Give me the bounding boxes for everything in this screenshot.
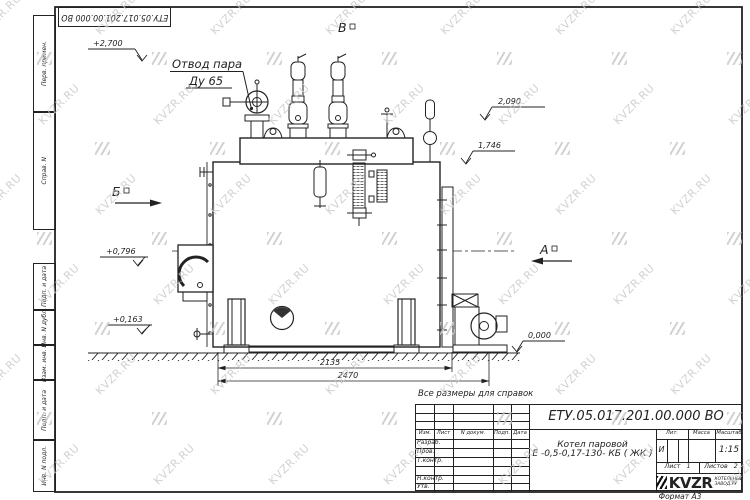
burner-unit	[178, 245, 213, 301]
svg-text:А: А	[539, 242, 549, 257]
col-podp: Подп.	[493, 429, 511, 439]
steam-outlet-valve	[223, 80, 269, 138]
scale-header: Масштаб	[715, 429, 743, 439]
row-razrab: Разраб.	[417, 439, 453, 448]
side-field-perv-primen: Перв. примен.	[33, 15, 56, 112]
sheet-cell: Лист 1	[656, 462, 699, 473]
lit-value: И	[656, 439, 667, 462]
svg-text:+0,796: +0,796	[106, 247, 136, 256]
svg-text:+0,163: +0,163	[113, 315, 143, 324]
lit-header: Лит.	[656, 429, 688, 439]
logo-subtitle: КОТЕЛЬНЫЙ ЗАВОД.РУ	[714, 478, 743, 488]
view-marker-top: В	[338, 20, 355, 35]
mass-value	[688, 439, 715, 462]
side-field-inv-podl: Инв. N подл.	[33, 440, 56, 492]
side-field-inv-dubl: Инв. N дубл.	[33, 310, 56, 345]
safety-valve-2	[328, 54, 348, 138]
dim-2135: 2135	[320, 358, 340, 367]
format-label: Формат А3	[630, 492, 730, 500]
top-inverted-stamp: ЕТУ.05.017.201.00.000 ВО	[58, 7, 171, 27]
col-data: Дата	[511, 429, 529, 439]
row-tkontr: Т.контр.	[417, 457, 453, 466]
callout-line2: Ду 65	[188, 74, 223, 88]
view-marker-right: А	[531, 242, 572, 265]
row-utv: Утв.	[417, 483, 453, 492]
spring-icon	[656, 476, 667, 489]
side-field-podp-data-1: Подп. и дата	[33, 263, 56, 310]
pressure-gauge	[424, 100, 437, 162]
dim-2470: 2470	[338, 371, 358, 380]
svg-text:+2,700: +2,700	[93, 39, 123, 48]
kvzr-logo: KVZR КОТЕЛЬНЫЙ ЗАВОД.РУ	[656, 473, 743, 492]
reference-note: Все размеры для справок	[418, 389, 534, 399]
side-field-vzam-inv: Взам. инв. N	[33, 345, 56, 380]
vent-pipe	[381, 108, 393, 138]
svg-text:0,000: 0,000	[528, 331, 551, 340]
col-izm: Изм.	[416, 429, 434, 439]
logo-text: KVZR	[669, 474, 713, 492]
col-ndocum: N докум.	[453, 429, 493, 439]
col-list: Лист	[434, 429, 453, 439]
svg-text:1,746: 1,746	[478, 141, 501, 150]
scale-value: 1:15	[715, 439, 743, 462]
sheets-cell: Листов 2	[699, 462, 743, 473]
drawing-sheet: Отвод пара Ду 65 В Б А +2,700	[0, 0, 750, 500]
row-prov: Пров.	[417, 448, 453, 457]
doc-number: ЕТУ.05.017.201.00.000 ВО	[529, 405, 743, 429]
safety-valve-1	[288, 54, 308, 138]
top-stamp-text: ЕТУ.05.017.201.00.000 ВО	[61, 12, 168, 22]
svg-text:В: В	[338, 20, 347, 35]
side-field-podp-data-2: Подп. и дата	[33, 380, 56, 440]
ground-line	[88, 353, 520, 361]
title-block: Изм. Лист N докум. Подп. Дата Разраб. Пр…	[415, 404, 742, 491]
economizer-fan-unit	[452, 294, 507, 352]
mass-header: Масса	[688, 429, 715, 439]
svg-text:Б: Б	[112, 184, 121, 199]
side-field-sprav-n: Справ. N	[33, 112, 56, 230]
callout-line1: Отвод пара	[172, 57, 242, 71]
product-name: Котел паровой Е -0,5-0,17-130- КБ ( ЖК )	[529, 433, 656, 467]
row-nkontr: Н.контр.	[417, 475, 453, 483]
view-marker-left: Б	[112, 184, 162, 207]
svg-text:2,090: 2,090	[498, 97, 521, 106]
